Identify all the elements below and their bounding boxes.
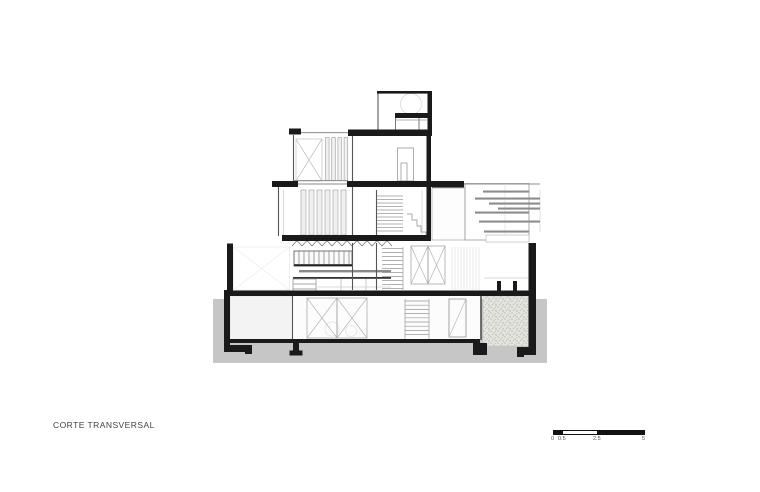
stair-level4 <box>382 247 403 290</box>
scale-bar-segment-2 <box>562 430 598 435</box>
pergola-louver-screen <box>432 184 540 243</box>
basement-interior-fills <box>230 296 529 346</box>
scale-label-2-5: 2.5 <box>593 436 601 442</box>
building-section-svg <box>0 0 760 492</box>
facade-louvers-level2 <box>326 138 348 181</box>
scale-bar-segment-3 <box>598 430 645 435</box>
scale-bar-labels: 0 0.5 2.5 5 <box>551 436 651 444</box>
scale-bar-segment-1 <box>553 430 562 435</box>
scale-label-0-5: 0.5 <box>558 436 566 442</box>
scale-label-5: 5 <box>642 436 645 442</box>
terrace-screen-hatch <box>452 247 479 290</box>
section-drawing-sheet: CORTE TRANSVERSAL 0 0.5 2.5 5 <box>0 0 760 492</box>
stair-level3 <box>377 190 426 238</box>
drawing-title: CORTE TRANSVERSAL <box>53 420 155 430</box>
scale-label-0: 0 <box>551 436 554 442</box>
scale-bar <box>553 430 645 435</box>
facade-louvers-level3 <box>301 190 346 235</box>
